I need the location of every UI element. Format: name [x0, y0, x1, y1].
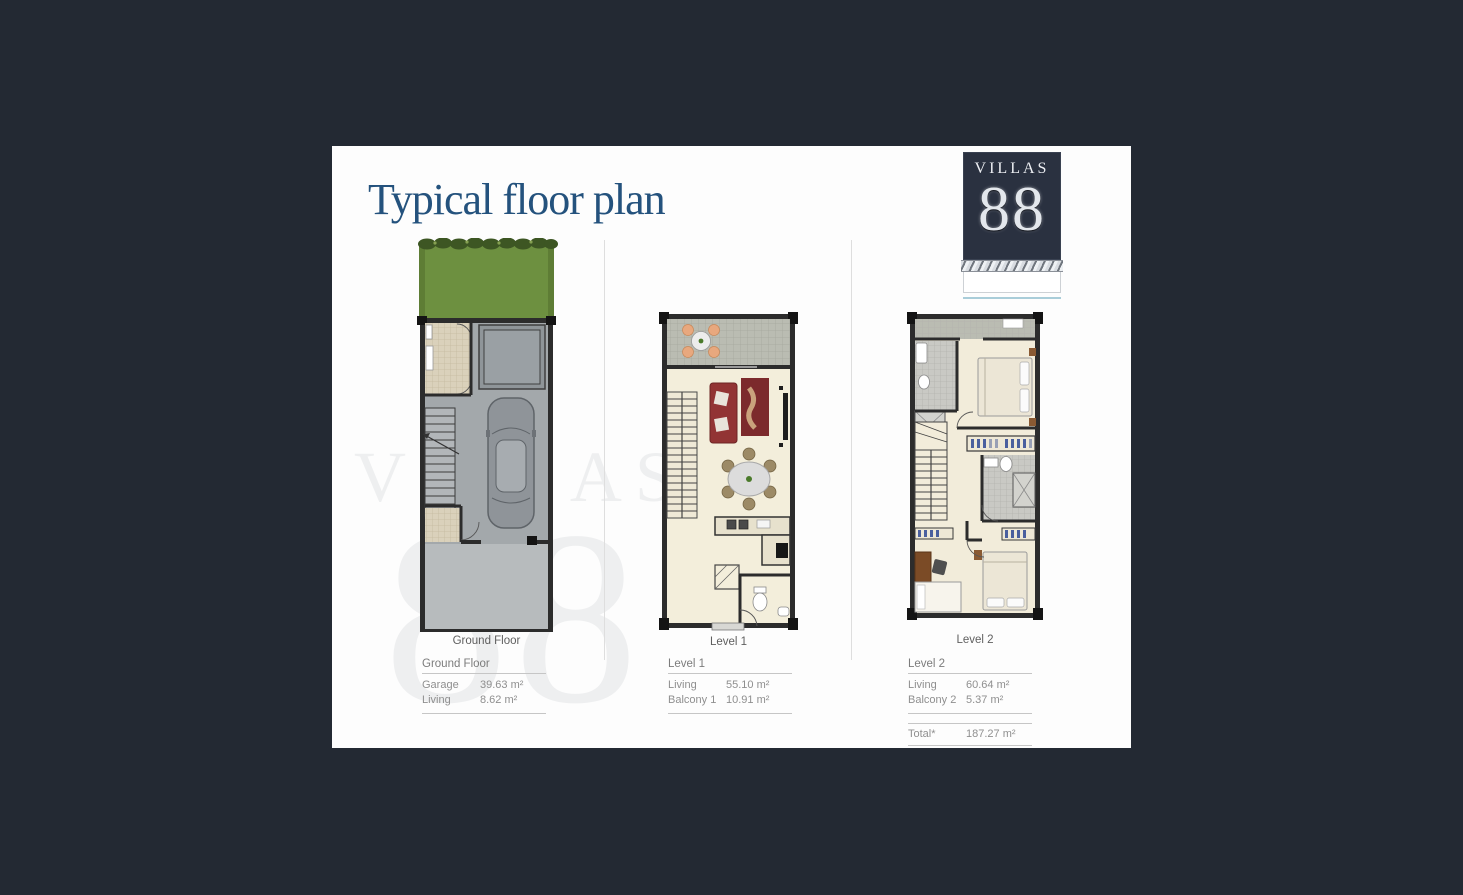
table-row: Garage 39.63 m²: [422, 678, 546, 693]
page-title: Typical floor plan: [368, 174, 665, 225]
row-label: Living: [422, 693, 480, 708]
planter-strip: [915, 319, 1035, 339]
row-label: Garage: [422, 678, 480, 693]
table-body: Living 55.10 m² Balcony 1 10.91 m²: [668, 678, 792, 714]
row-label: Balcony 2: [908, 693, 966, 708]
plan-caption-level2: Level 2: [905, 634, 1045, 646]
row-label: Living: [908, 678, 966, 693]
rug: [741, 378, 769, 436]
logo-box: VILLAS 88: [963, 152, 1061, 260]
linen-cupboard: [1002, 528, 1035, 540]
nightstand: [1029, 418, 1036, 426]
garden: [418, 238, 558, 320]
basin: [984, 458, 998, 467]
floorplan-sheet: VILLAS 88 Typical floor plan VILLAS 88: [332, 146, 1131, 748]
garage-door-recess: [479, 325, 545, 389]
villas88-logo: VILLAS 88: [963, 152, 1061, 299]
logo-silver-band: [961, 260, 1063, 272]
staircase: [915, 422, 947, 520]
row-value: 39.63 m²: [480, 678, 523, 693]
wardrobe: [967, 436, 1035, 451]
column-divider: [851, 240, 852, 660]
row-label: Living: [668, 678, 726, 693]
driveway: [425, 544, 548, 629]
logo-number: 88: [978, 178, 1046, 241]
table-row: Balcony 2 5.37 m²: [908, 693, 1032, 708]
ground-floor-plan: [415, 238, 558, 634]
row-label: Balcony 1: [668, 693, 726, 708]
row-value: 10.91 m²: [726, 693, 769, 708]
car: [486, 398, 536, 528]
row-value: 55.10 m²: [726, 678, 769, 693]
area-table-level2: Level 2 Living 60.64 m² Balcony 2 5.37 m…: [908, 658, 1032, 746]
entry-step: [712, 623, 744, 630]
basin: [778, 607, 789, 616]
staircase: [423, 408, 459, 516]
total-label: Total*: [908, 727, 966, 742]
table-header: Ground Floor: [422, 658, 546, 674]
area-table-ground-floor: Ground Floor Garage 39.63 m² Living 8.62…: [422, 658, 546, 714]
logo-white-strip: [963, 272, 1061, 293]
staircase: [667, 392, 697, 518]
toilet: [1000, 457, 1012, 472]
table-row: Living 60.64 m²: [908, 678, 1032, 693]
level1-plan: [657, 310, 800, 632]
area-table-level1: Level 1 Living 55.10 m² Balcony 1 10.91 …: [668, 658, 792, 714]
level2-plan: [905, 310, 1045, 622]
toilet: [753, 593, 767, 611]
table-body: Living 60.64 m² Balcony 2 5.37 m²: [908, 678, 1032, 714]
table-row: Living 55.10 m²: [668, 678, 792, 693]
bathtub: [916, 343, 927, 363]
nightstand: [1029, 348, 1036, 356]
balcony: [667, 319, 790, 367]
desk: [915, 552, 931, 586]
total-row: Total* 187.27 m²: [908, 723, 1032, 746]
table-row: Living 8.62 m²: [422, 693, 546, 708]
plan-caption-level1: Level 1: [657, 636, 800, 648]
row-value: 8.62 m²: [480, 693, 517, 708]
tv-unit: [783, 393, 788, 440]
bathroom-2: [982, 455, 1035, 521]
bathroom: [425, 323, 471, 395]
table-row: Balcony 1 10.91 m²: [668, 693, 792, 708]
total-value: 187.27 m²: [966, 727, 1016, 742]
plan-caption-ground-floor: Ground Floor: [415, 635, 558, 647]
row-value: 60.64 m²: [966, 678, 1009, 693]
table-header: Level 2: [908, 658, 1032, 674]
table-header: Level 1: [668, 658, 792, 674]
sofa: [710, 383, 737, 443]
logo-blue-underline: [963, 297, 1061, 299]
toilet: [919, 375, 930, 389]
table-body: Garage 39.63 m² Living 8.62 m²: [422, 678, 546, 714]
column-divider: [604, 240, 605, 660]
row-value: 5.37 m²: [966, 693, 1003, 708]
